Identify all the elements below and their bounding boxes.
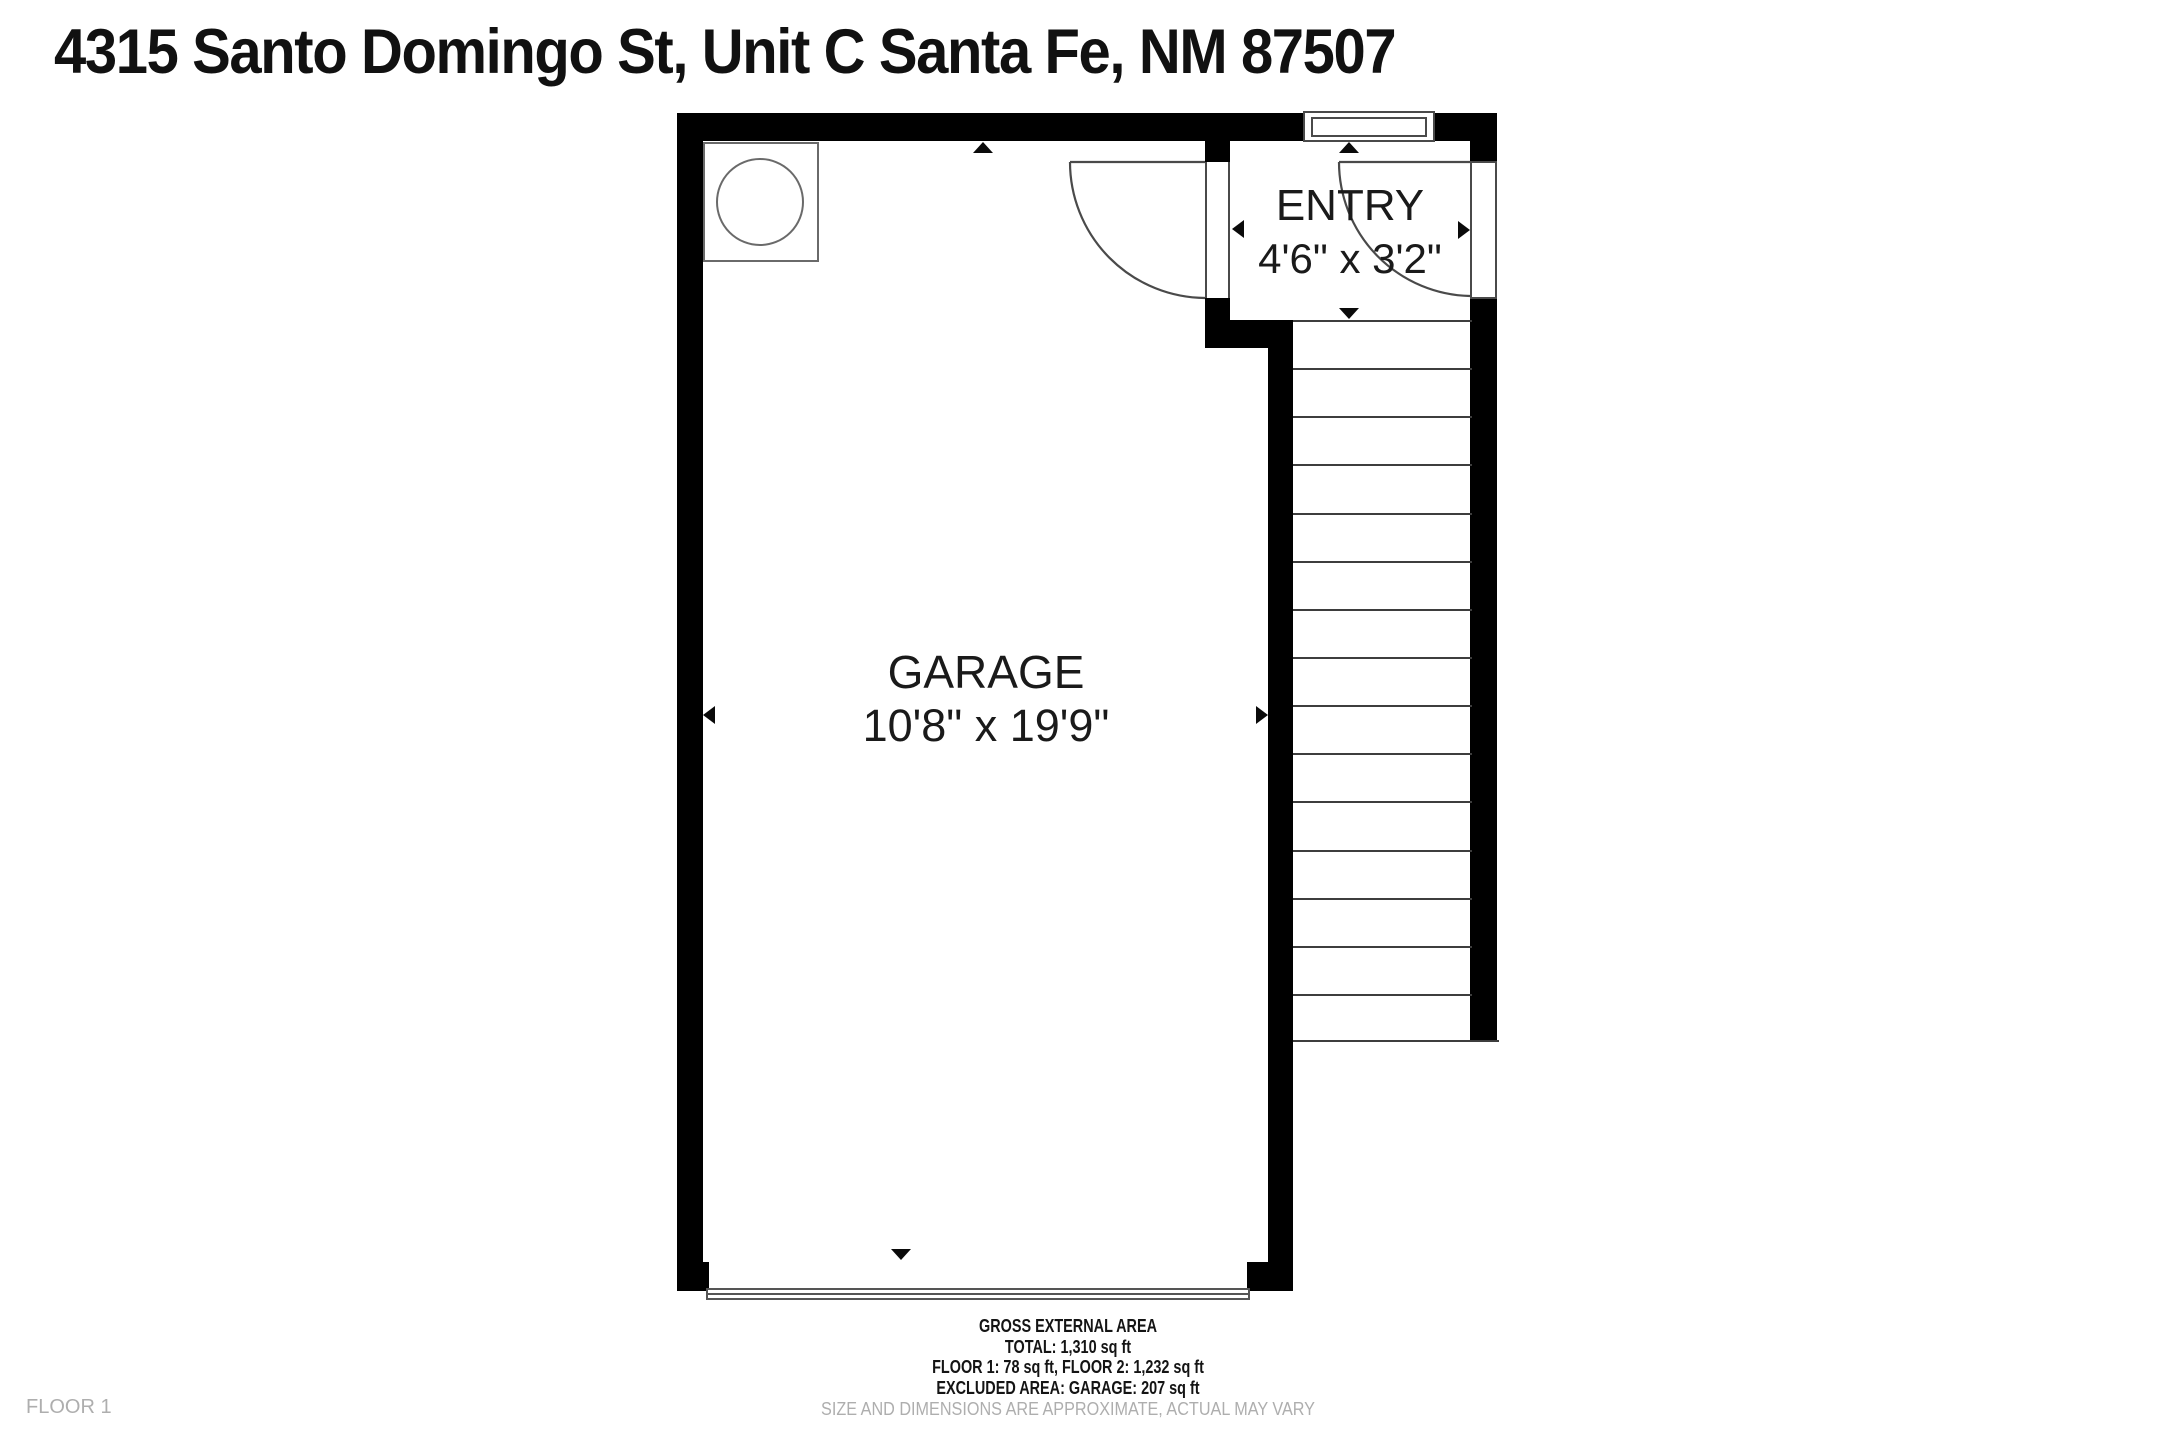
entry-room-name: ENTRY (1200, 180, 1500, 232)
stair-tread (1293, 946, 1472, 994)
stair-tread (1293, 561, 1472, 609)
front-door-slab (1311, 117, 1427, 137)
area-summary-floors: FLOOR 1: 78 sq ft, FLOOR 2: 1,232 sq ft (834, 1357, 1302, 1378)
garage-room-name: GARAGE (786, 645, 1186, 699)
stair-tread (1293, 801, 1472, 849)
garage-dimension-arrow-down-icon (891, 1249, 911, 1260)
staircase (1293, 320, 1472, 1042)
page-title: 4315 Santo Domingo St, Unit C Santa Fe, … (54, 16, 1512, 88)
garage-dimension-arrow-right-icon (1256, 706, 1268, 724)
wall-right-mid (1470, 298, 1497, 1042)
entry-room-dimensions: 4'6" x 3'2" (1200, 232, 1500, 285)
stair-tread (1293, 898, 1472, 946)
wall-left-bottom-pier (677, 1262, 709, 1291)
wall-entry-jamb-top (1205, 140, 1230, 162)
washer-drum-icon (716, 158, 804, 246)
stair-tread (1293, 994, 1472, 1042)
area-summary-excluded: EXCLUDED AREA: GARAGE: 207 sq ft (834, 1378, 1302, 1399)
garage-dimension-arrow-up-icon (973, 142, 993, 153)
wall-entry-stairs-junction (1205, 320, 1293, 348)
stair-tread (1293, 850, 1472, 898)
garage-entry-door-swing-arc (1070, 162, 1205, 298)
page-title-text: 4315 Santo Domingo St, Unit C Santa Fe, … (54, 16, 1395, 88)
garage-room-dimensions: 10'8" x 19'9" (786, 699, 1186, 752)
wall-left (677, 113, 703, 1291)
wall-garage-stairs (1268, 348, 1293, 1291)
size-disclaimer: SIZE AND DIMENSIONS ARE APPROXIMATE, ACT… (798, 1399, 1338, 1420)
stair-tread (1293, 464, 1472, 512)
stair-tread (1293, 320, 1472, 368)
stair-tread (1293, 705, 1472, 753)
stair-tread (1293, 657, 1472, 705)
wall-entry-jamb-bottom (1205, 298, 1230, 320)
area-summary-heading: GROSS EXTERNAL AREA (834, 1316, 1302, 1337)
floor-number-label: FLOOR 1 (26, 1396, 112, 1419)
stair-tread (1293, 753, 1472, 801)
garage-door-panel-line (708, 1293, 1248, 1295)
entry-label: ENTRY 4'6" x 3'2" (1200, 180, 1500, 285)
garage-label: GARAGE 10'8" x 19'9" (786, 645, 1186, 752)
entry-dimension-arrow-down-icon (1339, 308, 1359, 319)
wall-right-bottom-pier (1247, 1262, 1293, 1291)
wall-top-left-segment (677, 113, 1305, 141)
entry-dimension-arrow-up-icon (1339, 142, 1359, 153)
floorplan-canvas: 4315 Santo Domingo St, Unit C Santa Fe, … (0, 0, 2173, 1448)
staircase-bottom-line (1293, 1040, 1499, 1042)
stair-tread (1293, 609, 1472, 657)
area-summary-total: TOTAL: 1,310 sq ft (834, 1337, 1302, 1358)
stair-tread (1293, 513, 1472, 561)
area-summary: GROSS EXTERNAL AREA TOTAL: 1,310 sq ft F… (768, 1316, 1368, 1420)
stair-tread (1293, 416, 1472, 464)
garage-dimension-arrow-left-icon (703, 706, 715, 724)
garage-door (706, 1288, 1250, 1300)
wall-right-top (1470, 113, 1497, 162)
stair-tread (1293, 368, 1472, 416)
